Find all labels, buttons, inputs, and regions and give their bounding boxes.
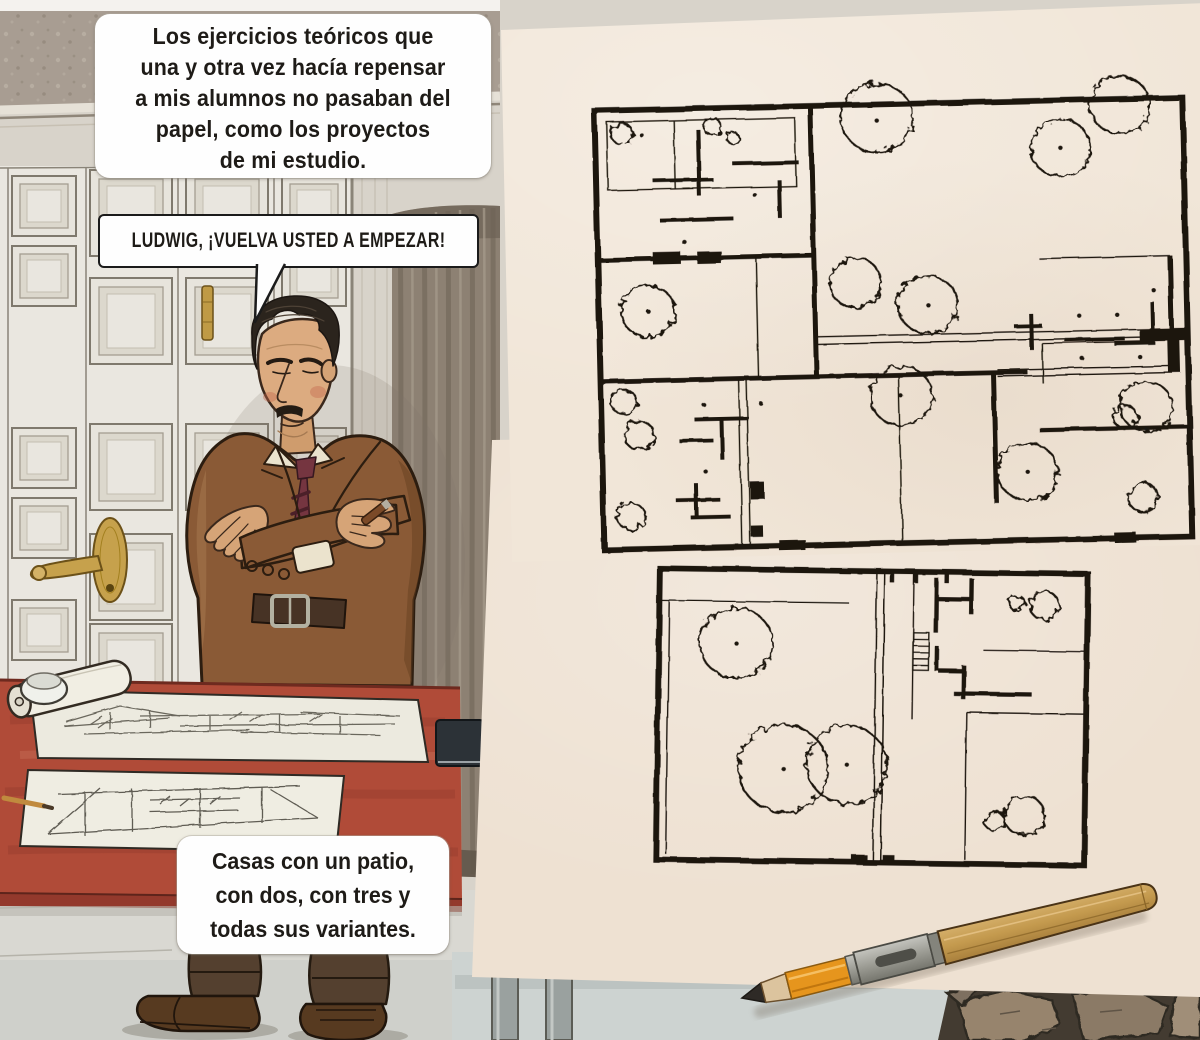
narration-box-top: Los ejercicios teóricos que una y otra v… <box>95 14 491 178</box>
caption-line: de mi estudio. <box>120 145 466 176</box>
caption-line: Los ejercicios teóricos que <box>120 21 466 52</box>
inkwell <box>21 673 67 704</box>
caption-line: a mis alumnos no pasaban del <box>120 83 466 114</box>
caption-line: papel, como los proyectos <box>120 114 466 145</box>
speech-text: LUDWIG, ¡VUELVA USTED A EMPEZAR! <box>132 229 446 253</box>
narration-box-bottom: Casas con un patio, con dos, con tres y … <box>177 836 449 954</box>
single-courtyard-house-plan <box>650 555 1094 873</box>
caption-line: todas sus variantes. <box>196 912 430 946</box>
notebook <box>436 720 484 766</box>
pencil-extender <box>710 852 1190 1034</box>
belt <box>252 594 346 628</box>
speech-bubble-tail <box>250 264 290 326</box>
plan-trees <box>604 75 1175 530</box>
plan-trees <box>697 587 1059 836</box>
comic-panel: Los ejercicios teóricos que una y otra v… <box>0 0 1200 1040</box>
caption-line: con dos, con tres y <box>196 878 430 912</box>
caption-line: Casas con un patio, <box>196 844 430 878</box>
plan-sheet-top <box>494 0 1200 572</box>
speech-bubble: LUDWIG, ¡VUELVA USTED A EMPEZAR! <box>98 214 479 268</box>
courtyard-houses-site-plan <box>589 61 1200 554</box>
door-hinge-brass <box>202 286 213 340</box>
caption-line: una y otra vez hacía repensar <box>120 52 466 83</box>
